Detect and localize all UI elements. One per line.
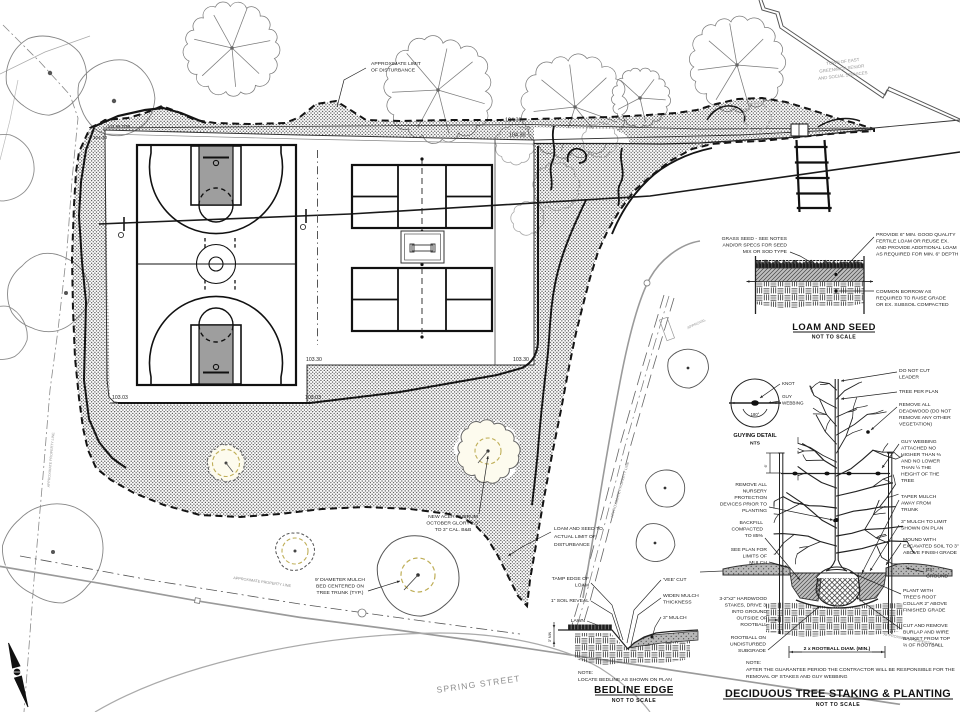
svg-text:TAPER MULCH: TAPER MULCH [901,494,937,500]
svg-text:2 x ROOTBALL DIAM. (MIN.): 2 x ROOTBALL DIAM. (MIN.) [804,646,871,652]
svg-text:1" SOIL REVEAL: 1" SOIL REVEAL [551,598,589,604]
svg-text:VEGETATION): VEGETATION) [899,422,932,428]
svg-text:⅔ OF ROOTBALL: ⅔ OF ROOTBALL [903,643,944,649]
svg-text:HEIGHT OF THE: HEIGHT OF THE [901,472,940,478]
svg-text:GUY: GUY [782,394,792,399]
svg-text:MOUND WITH: MOUND WITH [903,537,936,543]
svg-text:TREE'S ROOT: TREE'S ROOT [903,595,936,601]
svg-text:NTS: NTS [750,441,761,447]
svg-text:EXCAVATED SOIL TO 3": EXCAVATED SOIL TO 3" [903,544,959,550]
svg-text:103.99 TOB: 103.99 TOB [107,124,131,129]
svg-text:GUYING DETAIL: GUYING DETAIL [733,433,777,439]
svg-text:BEDLINE EDGE: BEDLINE EDGE [594,685,674,696]
svg-text:103.03: 103.03 [112,395,128,401]
svg-text:BASKET FROM TOP: BASKET FROM TOP [903,636,951,642]
svg-text:APPROVAL: APPROVAL [687,318,707,330]
svg-text:104.30: 104.30 [93,135,107,140]
svg-text:NEW ACER RUBRUM: NEW ACER RUBRUM [428,514,478,520]
svg-text:TO 3" CAL. B&B: TO 3" CAL. B&B [435,527,472,533]
svg-text:SUBGRADE: SUBGRADE [738,648,767,654]
svg-text:SEE PLAN FOR: SEE PLAN FOR [731,547,768,553]
svg-text:LOCATE BEDLINE AS SHOWN ON PLA: LOCATE BEDLINE AS SHOWN ON PLAN [578,677,672,683]
svg-text:TO 85%: TO 85% [745,533,764,539]
svg-text:NOT TO SCALE: NOT TO SCALE [816,702,861,708]
svg-text:BED CENTERED ON: BED CENTERED ON [316,584,364,590]
svg-text:ROOTBALL: ROOTBALL [740,622,767,628]
svg-text:ACTUAL LIMIT OF: ACTUAL LIMIT OF [554,534,596,540]
svg-text:REMOVE ALL: REMOVE ALL [899,402,931,408]
svg-text:ROOTBALL ON: ROOTBALL ON [731,635,767,641]
svg-text:DEADWOOD (DO NOT: DEADWOOD (DO NOT [899,409,951,415]
svg-text:AFTER THE GUARANTEE PERIOD THE: AFTER THE GUARANTEE PERIOD THE CONTRACTO… [746,667,956,673]
svg-text:BACKFILL: BACKFILL [739,520,763,526]
svg-text:TREE: TREE [901,478,915,484]
svg-text:APPROXIMATE PROPERTY LINE: APPROXIMATE PROPERTY LINE [47,432,56,488]
svg-text:EX.: EX. [926,567,934,573]
svg-text:LEADER: LEADER [899,375,919,381]
svg-text:APPROXIMATE PROPERTY LINE: APPROXIMATE PROPERTY LINE [610,461,630,519]
svg-text:'VEE' CUT: 'VEE' CUT [663,577,687,583]
svg-text:APPROXIMATE PROPERTY LINE: APPROXIMATE PROPERTY LINE [233,576,292,588]
svg-text:NOT TO SCALE: NOT TO SCALE [612,698,657,704]
svg-text:TRUNK: TRUNK [901,507,919,513]
svg-text:AWAY FROM: AWAY FROM [901,501,931,507]
svg-text:NOTE:: NOTE: [746,660,761,666]
svg-text:PROVIDE 6" MIN. GOOD QUALITY: PROVIDE 6" MIN. GOOD QUALITY [876,232,956,238]
svg-text:OF DISTURBANCE: OF DISTURBANCE [371,68,416,74]
svg-text:TREE TRUNK (TYP.): TREE TRUNK (TYP.) [317,590,364,596]
svg-text:103.03: 103.03 [305,395,321,401]
svg-text:MULCH: MULCH [749,560,767,566]
svg-text:HIGHER THAN ⅔: HIGHER THAN ⅔ [901,452,942,458]
svg-text:NOTE:: NOTE: [578,670,593,676]
svg-text:FINISHED GRADE: FINISHED GRADE [903,608,946,614]
svg-text:9' DIAMETER MULCH: 9' DIAMETER MULCH [315,577,365,583]
svg-text:NOT TO SCALE: NOT TO SCALE [812,335,857,341]
svg-text:REMOVAL OF STAKES AND GUY WEBB: REMOVAL OF STAKES AND GUY WEBBING [746,674,848,680]
svg-text:COMMON BORROW AS: COMMON BORROW AS [876,289,932,295]
svg-text:LOAM AND SEED: LOAM AND SEED [792,321,876,332]
svg-text:PLANT WITH: PLANT WITH [903,588,933,594]
svg-text:ABOVE FINISH GRADE: ABOVE FINISH GRADE [903,550,958,556]
svg-text:REMOVE ALL: REMOVE ALL [735,482,767,488]
svg-text:TAMP EDGE OF: TAMP EDGE OF [552,576,589,582]
svg-text:GRASS SEED - SEE NOTES: GRASS SEED - SEE NOTES [722,236,788,242]
svg-text:WEBBING: WEBBING [782,401,804,406]
svg-text:OCTOBER GLORY 2.5": OCTOBER GLORY 2.5" [426,521,480,527]
svg-text:OR EX. SUBSOIL COMPACTED: OR EX. SUBSOIL COMPACTED [876,302,949,308]
svg-text:103.30: 103.30 [513,357,529,363]
svg-text:SHOWN ON PLAN: SHOWN ON PLAN [901,526,944,532]
svg-text:UNDISTURBED: UNDISTURBED [730,642,766,648]
svg-text:APPROXIMATE LIMIT: APPROXIMATE LIMIT [371,61,421,67]
svg-text:AND PROVIDE ADDITIONAL LOAM: AND PROVIDE ADDITIONAL LOAM [876,245,957,251]
svg-text:COLLAR 2" ABOVE: COLLAR 2" ABOVE [903,601,948,607]
svg-text:THICKNESS: THICKNESS [663,600,692,606]
svg-text:WIDEN MULCH: WIDEN MULCH [663,593,699,599]
svg-text:3" MULCH TO LIMIT: 3" MULCH TO LIMIT [901,519,947,525]
svg-text:180°: 180° [751,412,760,417]
svg-text:3" MIN: 3" MIN [548,631,552,642]
svg-text:3" MULCH: 3" MULCH [663,615,687,621]
svg-text:PROTECTION: PROTECTION [734,495,767,501]
svg-text:DO NOT CUT: DO NOT CUT [899,368,930,374]
svg-text:DEVICES PRIOR TO: DEVICES PRIOR TO [720,502,767,508]
svg-text:BURLAP AND WIRE: BURLAP AND WIRE [903,630,950,636]
svg-text:DECIDUOUS TREE STAKING & PLANT: DECIDUOUS TREE STAKING & PLANTING [725,688,951,700]
svg-text:FERTILE LOAM OR REUSE EX.: FERTILE LOAM OR REUSE EX. [876,239,949,245]
svg-text:INTO GROUND: INTO GROUND [732,609,768,615]
svg-text:103.30: 103.30 [306,357,322,363]
svg-text:AS REQUIRED FOR MIN. 6" DEPTH: AS REQUIRED FOR MIN. 6" DEPTH [876,252,959,258]
svg-text:COMPACTED: COMPACTED [732,527,764,533]
svg-text:104.30: 104.30 [505,118,521,124]
svg-text:THAN ½ THE: THAN ½ THE [901,464,932,471]
svg-text:GUY WEBBING: GUY WEBBING [901,439,937,445]
svg-text:STAKES, DRIVE 3': STAKES, DRIVE 3' [725,603,767,609]
svg-text:LOAM AND SEED TO: LOAM AND SEED TO [554,526,603,532]
svg-text:3-2"x2" HARDWOOD: 3-2"x2" HARDWOOD [719,596,767,602]
svg-text:PLANTING: PLANTING [742,508,767,514]
svg-text:SPRING STREET: SPRING STREET [436,673,521,695]
svg-text:REMOVE ANY OTHER: REMOVE ANY OTHER [899,415,951,421]
svg-text:NURSERY: NURSERY [743,489,768,495]
svg-text:CUT AND REMOVE: CUT AND REMOVE [903,623,948,629]
svg-text:AND NO LOWER: AND NO LOWER [901,459,940,465]
svg-text:REQUIRED TO RAISE GRADE: REQUIRED TO RAISE GRADE [876,296,947,302]
svg-text:LOAM: LOAM [575,583,589,589]
svg-text:AND/OR SPECS FOR SEED: AND/OR SPECS FOR SEED [722,243,787,249]
svg-text:104.30: 104.30 [509,133,525,139]
svg-text:DISTURBANCE: DISTURBANCE [554,542,590,548]
svg-text:GROUND: GROUND [926,574,949,580]
svg-text:ATTACHED NO: ATTACHED NO [901,446,936,452]
svg-text:OUTSIDE OF: OUTSIDE OF [737,616,767,622]
svg-text:MIX OR SOD TYPE: MIX OR SOD TYPE [743,249,788,255]
svg-text:LIMITS OF: LIMITS OF [743,554,767,560]
svg-text:6': 6' [764,464,768,467]
svg-text:TREE PER PLAN: TREE PER PLAN [899,389,939,395]
svg-text:LAWN: LAWN [571,618,586,624]
svg-text:KNOT: KNOT [782,381,795,386]
